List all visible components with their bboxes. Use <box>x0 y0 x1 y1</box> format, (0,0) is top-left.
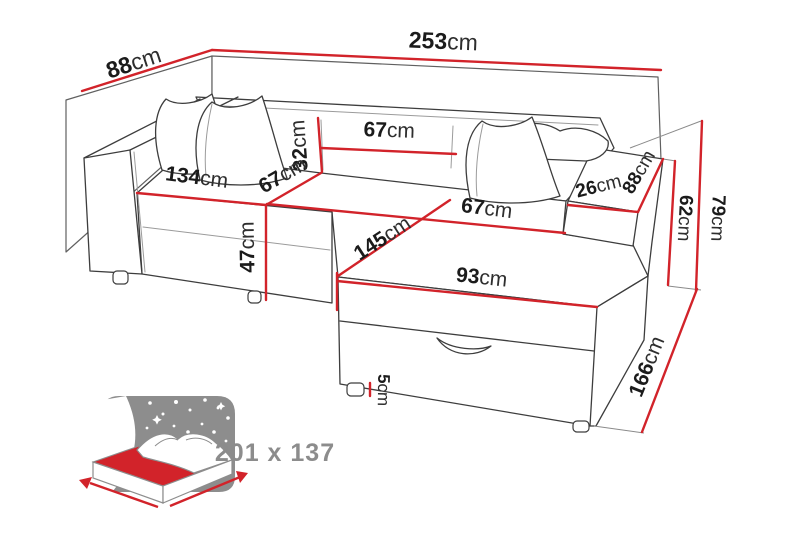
leg-front-mid <box>248 291 261 303</box>
dim-back-height-label: 79cm <box>706 195 729 242</box>
dim-line-back-height <box>696 121 702 291</box>
seat-left-front-face <box>137 193 332 303</box>
leg-chaise-left <box>347 383 364 396</box>
dim-side-length-label: 166cm <box>625 333 670 400</box>
sofa-dimension-diagram: 88cm 253cm 32cm 67cm 134cm 67cm 26cm 88c… <box>0 0 800 533</box>
dim-armrest-height-label: 62cm <box>673 195 696 243</box>
dim-leg-height-label: 5cm <box>374 374 394 406</box>
sleeping-area-size-label: 201 x 137 <box>215 439 335 467</box>
leg-front-left <box>113 271 128 284</box>
sleeping-function-bed-icon: 201 x 137 <box>79 396 335 507</box>
dim-backrest-cushion-width-label: 67cm <box>363 118 415 143</box>
dim-width-total-label: 253cm <box>408 27 478 56</box>
leg-chaise-right <box>573 421 589 432</box>
diagram-canvas: 88cm 253cm 32cm 67cm 134cm 67cm 26cm 88c… <box>0 0 800 533</box>
dim-seat-height-label: 47cm <box>236 221 260 273</box>
